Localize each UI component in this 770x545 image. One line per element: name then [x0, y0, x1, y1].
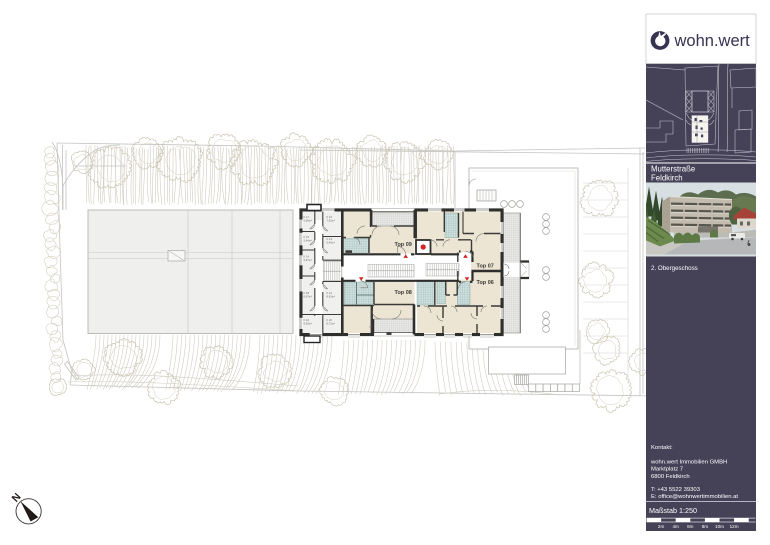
svg-text:8,71m²: 8,71m²: [327, 321, 335, 325]
svg-text:Top 09: Top 09: [395, 242, 412, 248]
svg-text:K 16: K 16: [327, 215, 333, 219]
svg-text:6800 Feldkirch: 6800 Feldkirch: [651, 474, 690, 480]
svg-text:5,56m²: 5,56m²: [304, 218, 312, 222]
svg-text:Kontakt:: Kontakt:: [651, 445, 673, 451]
svg-text:6m: 6m: [687, 524, 694, 529]
svg-text:Top 08: Top 08: [395, 290, 412, 296]
svg-text:E: office@wohnwertimmobilien.a: E: office@wohnwertimmobilien.at: [651, 494, 738, 500]
svg-text:5,67m²: 5,67m²: [304, 258, 312, 262]
svg-text:wohn.wert Immobilien GMBH: wohn.wert Immobilien GMBH: [650, 460, 727, 466]
svg-text:5,44m²: 5,44m²: [304, 238, 312, 242]
svg-text:4m: 4m: [673, 524, 680, 529]
svg-text:T: +43 5522 39303: T: +43 5522 39303: [651, 487, 701, 493]
svg-text:K 18: K 18: [304, 291, 310, 295]
svg-text:K 15: K 15: [304, 235, 310, 239]
svg-text:5,46m²: 5,46m²: [327, 240, 335, 244]
svg-text:Top 07: Top 07: [477, 263, 494, 269]
svg-text:Marktplatz 7: Marktplatz 7: [651, 467, 683, 473]
svg-text:2. Obergeschoss: 2. Obergeschoss: [651, 265, 698, 272]
svg-text:K 14: K 14: [304, 255, 310, 259]
svg-text:K 12: K 12: [327, 291, 333, 295]
svg-text:K 10: K 10: [304, 318, 310, 322]
svg-text:K 13: K 13: [327, 237, 333, 241]
svg-text:K 20: K 20: [327, 318, 333, 322]
svg-text:10m: 10m: [715, 524, 724, 529]
svg-text:8,61m²: 8,61m²: [327, 294, 335, 298]
svg-text:Maßstab 1:250: Maßstab 1:250: [649, 506, 697, 515]
svg-text:Mutterstraße: Mutterstraße: [651, 164, 695, 173]
svg-text:Feldkirch: Feldkirch: [651, 174, 683, 183]
svg-text:wohn.wert: wohn.wert: [674, 32, 751, 50]
svg-text:8,30m²: 8,30m²: [304, 321, 312, 325]
svg-text:8m: 8m: [702, 524, 709, 529]
svg-text:2m: 2m: [658, 524, 665, 529]
svg-text:12m: 12m: [730, 524, 739, 529]
svg-text:K 17: K 17: [304, 215, 310, 219]
svg-text:Top 06: Top 06: [477, 280, 494, 286]
svg-text:7,62m²: 7,62m²: [327, 218, 335, 222]
svg-text:8,67m²: 8,67m²: [304, 294, 312, 298]
